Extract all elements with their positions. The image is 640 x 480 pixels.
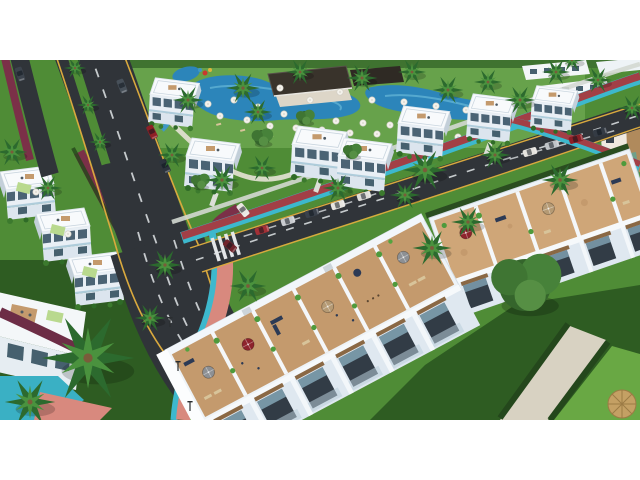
aerial-render-scene (0, 60, 640, 420)
letterboxed-render-canvas (0, 0, 640, 480)
thatch-umbrella (608, 390, 636, 418)
